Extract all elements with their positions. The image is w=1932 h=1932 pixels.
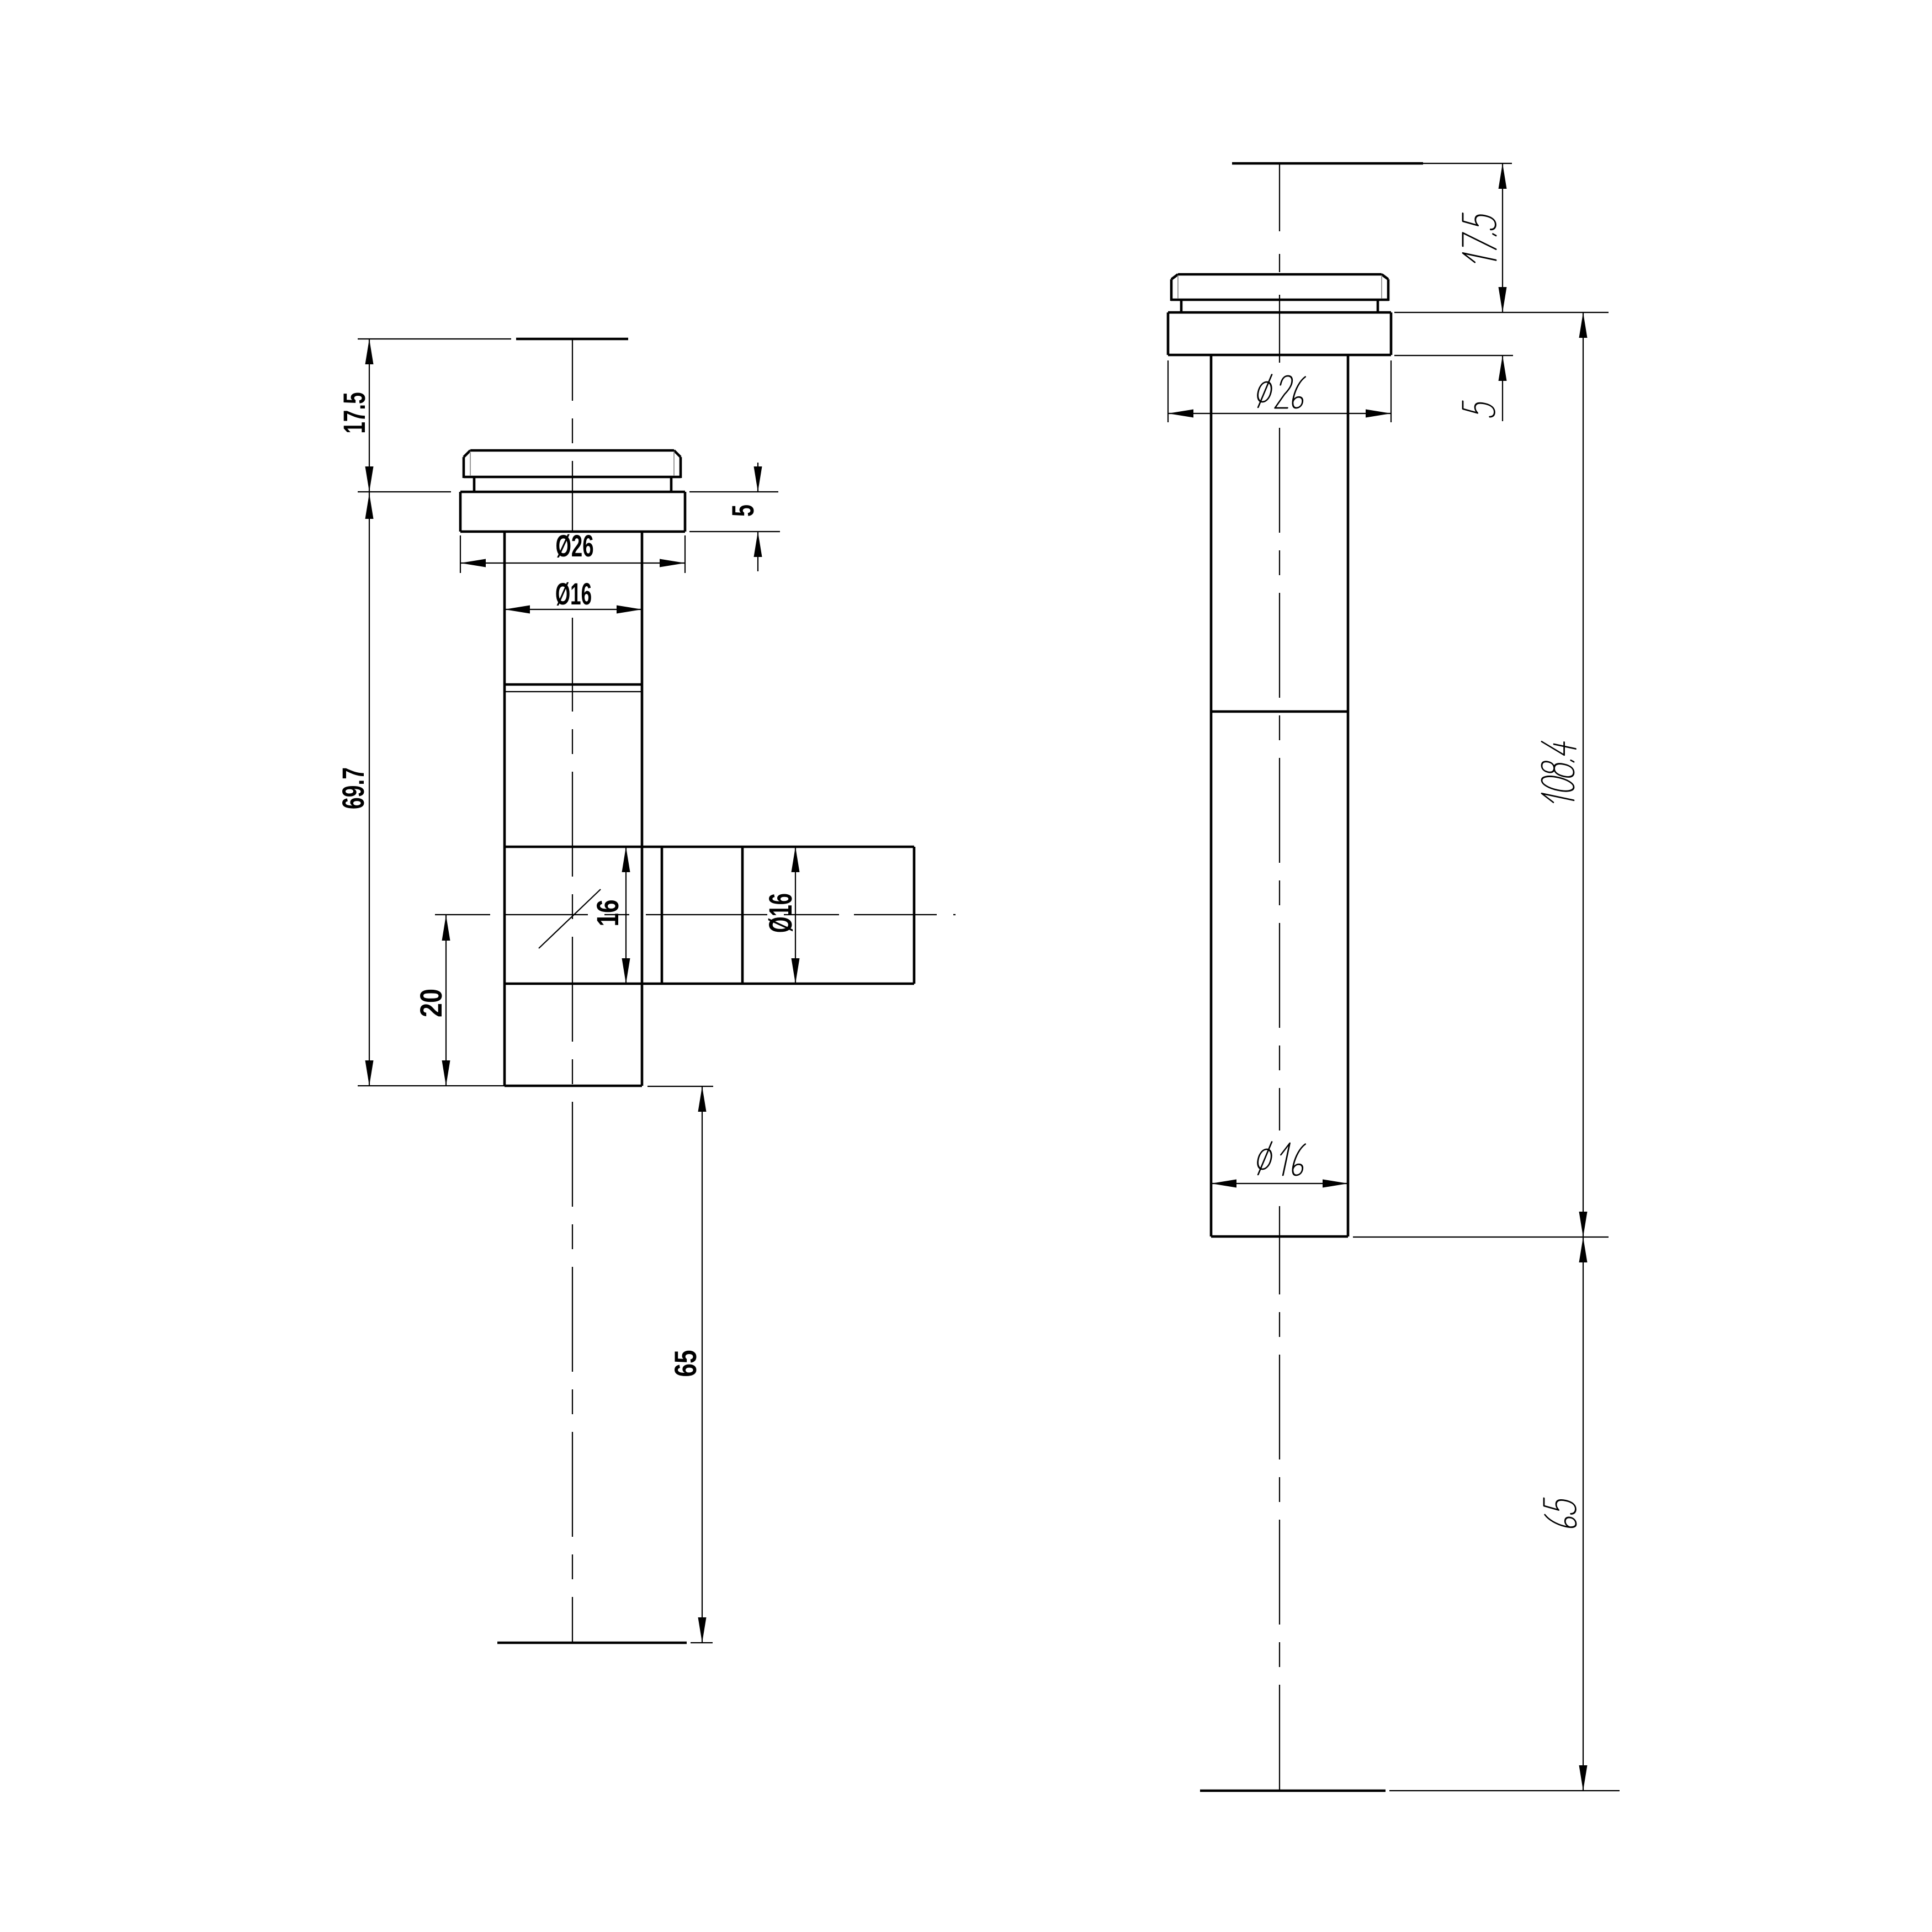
svg-text:69.7: 69.7 [336,767,370,809]
svg-text:20: 20 [413,989,448,1017]
svg-text:5: 5 [725,505,760,517]
svg-text:17.5: 17.5 [337,392,371,434]
svg-text:Ø26: Ø26 [556,528,594,563]
svg-text:65: 65 [668,1350,703,1377]
svg-text:Ø16: Ø16 [763,893,799,933]
svg-text:16: 16 [590,900,625,927]
svg-text:Ø16: Ø16 [555,576,592,611]
